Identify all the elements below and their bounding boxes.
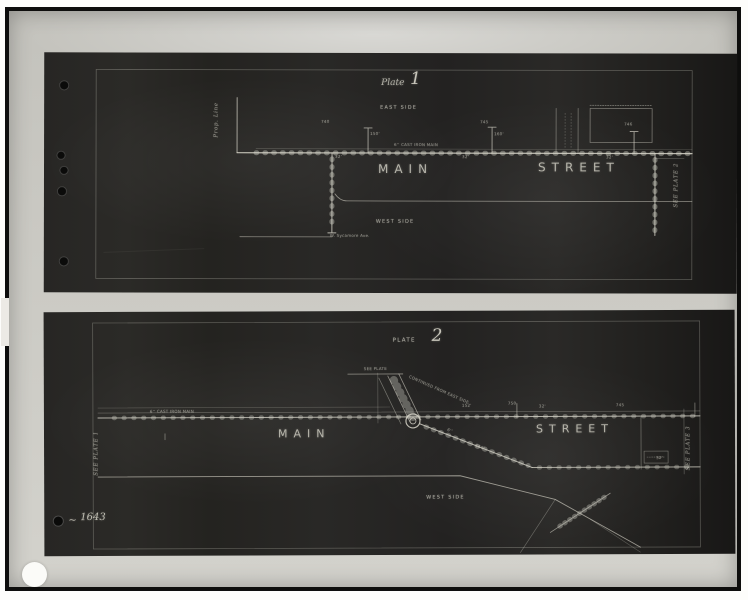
measurement-label: 745 xyxy=(616,403,624,407)
measurement-label: 32' xyxy=(656,456,663,460)
plate2-west-side-label: WEST SIDE xyxy=(426,495,465,500)
mount-edge-gap xyxy=(1,298,9,346)
measurement-label: 160' xyxy=(494,132,504,136)
measurement-label: 32' xyxy=(606,155,613,159)
plate1-prop-line-label: Prop. Line xyxy=(213,100,219,138)
measurement-label: 745 xyxy=(480,120,488,124)
plate2-main-label: MAIN xyxy=(278,428,331,439)
plate1-west-side-label: WEST SIDE xyxy=(376,219,415,224)
plate2-title-number: 2 xyxy=(432,328,443,345)
plate1-title-number: 1 xyxy=(410,71,421,88)
plate1-pipe-label: 6'' CAST IRON MAIN xyxy=(394,143,438,147)
plate1-cross-street-label: W. Sycamore Ave. xyxy=(330,234,370,238)
plate1-see-plate-label: SEE PLATE 2 xyxy=(673,152,679,208)
south-curb-line xyxy=(335,194,692,202)
measurement-label: 150' xyxy=(370,132,380,136)
measurement-label: 152' xyxy=(462,404,472,408)
plate1-east-side-label: EAST SIDE xyxy=(380,105,417,110)
plate2-linework xyxy=(44,310,736,556)
measurement-label: 750 xyxy=(508,402,516,406)
measurement-label: 32' xyxy=(539,404,546,408)
lot-lines xyxy=(556,108,578,153)
plate1-title-word: Plate xyxy=(381,79,404,88)
measurement-label: 32' xyxy=(462,155,469,159)
plate1-sheet: Plate 1 EAST SIDE Prop. Line MAIN STREET… xyxy=(44,52,738,293)
building-outline xyxy=(590,108,652,142)
plate2-title-word: PLATE xyxy=(393,338,416,344)
plate2-see-plate-left: SEE PLATE 1 xyxy=(93,436,99,475)
south-boundary xyxy=(98,475,640,549)
plate2-pipe-label: 6'' CAST IRON MAIN xyxy=(150,410,194,414)
archive-mark: ~ xyxy=(68,516,76,526)
measurement-label: 740 xyxy=(321,120,329,124)
photo-scan: Plate 1 EAST SIDE Prop. Line MAIN STREET… xyxy=(0,0,748,600)
sheet-punch-hole xyxy=(53,516,63,526)
plate1-main-label: MAIN xyxy=(378,163,433,175)
plate2-see-plate-note: SEE PLATE xyxy=(364,367,387,371)
plate2-see-plate-right: SEE PLATE 3 xyxy=(685,430,691,471)
measurement-label: 746 xyxy=(624,122,632,126)
plate2-street-label: STREET xyxy=(536,423,614,434)
archive-number: 1643 xyxy=(80,513,105,523)
plate1-street-label: STREET xyxy=(538,161,620,173)
measurement-label: 32' xyxy=(335,155,342,159)
plate2-sheet: PLATE 2 SEE PLATE CONTINUED FROM EAST SI… xyxy=(44,310,736,556)
mount-punch-hole xyxy=(22,562,47,587)
sheet-punch-holes xyxy=(57,81,69,266)
